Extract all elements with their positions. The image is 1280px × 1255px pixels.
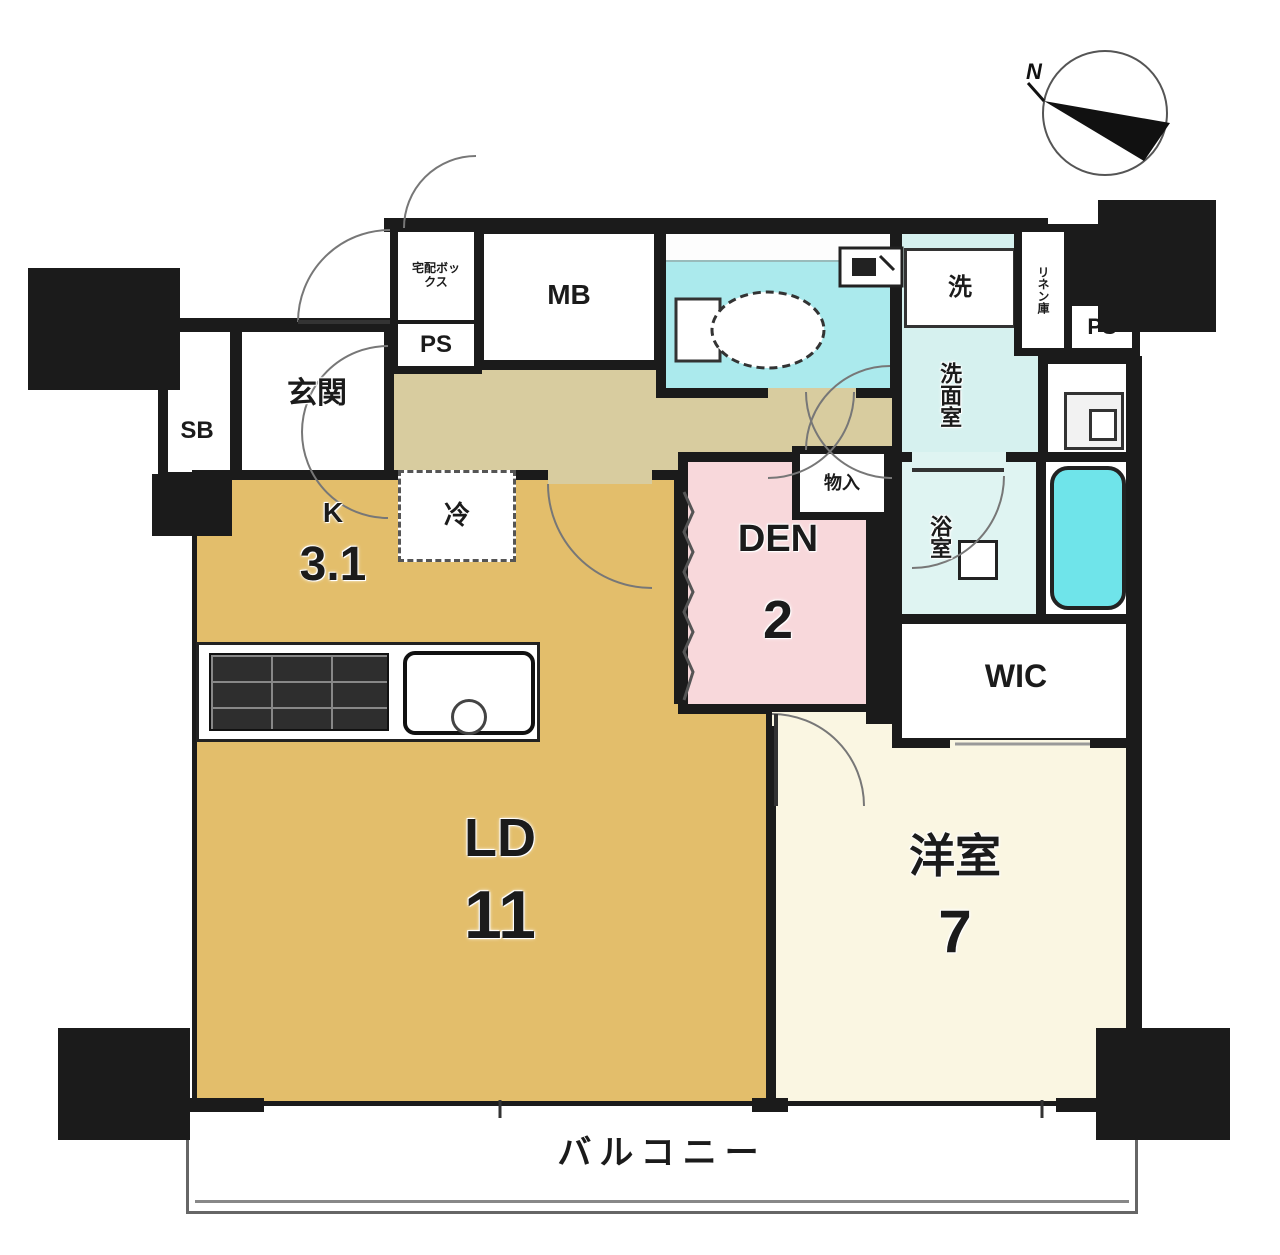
den-size: 2	[688, 592, 868, 649]
bathtub-icon	[1050, 466, 1126, 610]
door-gap	[548, 466, 652, 484]
wall-segment	[384, 218, 1048, 232]
kitchen-size: 3.1	[248, 540, 418, 590]
den-label: DEN	[688, 520, 868, 560]
bathtub-area	[1036, 452, 1140, 624]
compass-label: N	[1026, 59, 1043, 84]
kitchen-label: K	[258, 498, 408, 527]
entrance-label: 玄関	[252, 378, 382, 410]
meter-box-label: MB	[474, 280, 664, 309]
corner-pillar	[1096, 1028, 1230, 1140]
western-room-label: 洋室	[815, 832, 1095, 880]
wall-segment	[152, 318, 396, 332]
bathroom-label: 浴室	[928, 482, 951, 592]
kitchen-counter	[196, 642, 540, 742]
sink-icon	[403, 651, 535, 735]
pipe-space-left-label: PS	[420, 332, 452, 357]
wic-label: WIC	[892, 660, 1140, 694]
pipe-space-left: PS	[398, 324, 474, 366]
compass-north-icon: N	[1020, 35, 1190, 185]
living-dining-size: 11	[390, 880, 610, 951]
bathroom	[892, 452, 1048, 624]
linen-closet-label: リネン庫	[1037, 266, 1049, 314]
delivery-box-unit: 宅配ボックス PS	[390, 224, 482, 374]
living-dining-extension	[674, 704, 776, 1106]
delivery-box-label: 宅配ボックス	[408, 262, 464, 290]
door-gap	[772, 712, 866, 726]
wall-segment	[1126, 356, 1142, 1110]
toilet-window	[666, 234, 890, 262]
refrigerator-label: 冷	[444, 502, 470, 529]
storage-closet: 物入	[792, 446, 892, 520]
wall-segment	[752, 1098, 788, 1112]
sliding-door-gap	[950, 740, 1090, 750]
wall-segment	[152, 474, 232, 536]
door-gap	[768, 388, 856, 404]
corner-pillar	[58, 1028, 190, 1140]
living-dining-label: LD	[390, 810, 610, 867]
stove-icon	[209, 653, 389, 731]
vanity-sink-icon	[1064, 392, 1124, 450]
washing-machine-label: 洗	[948, 275, 972, 300]
delivery-box: 宅配ボックス	[398, 232, 474, 320]
bath-fixture-icon	[958, 540, 998, 580]
storage-label: 物入	[824, 474, 860, 493]
washing-machine-space: 洗	[904, 248, 1016, 328]
western-room-size: 7	[815, 900, 1095, 963]
corner-pillar	[28, 268, 180, 390]
wall-segment	[186, 1098, 264, 1112]
washroom-label: 洗面室	[938, 330, 961, 460]
shoe-box-label: SB	[160, 418, 234, 443]
balcony-label: バルコニー	[186, 1136, 1138, 1172]
floor-plan: 宅配ボックス PS 洗 リネン庫 PS 冷 物入	[0, 0, 1280, 1255]
corner-pillar	[1098, 200, 1216, 332]
